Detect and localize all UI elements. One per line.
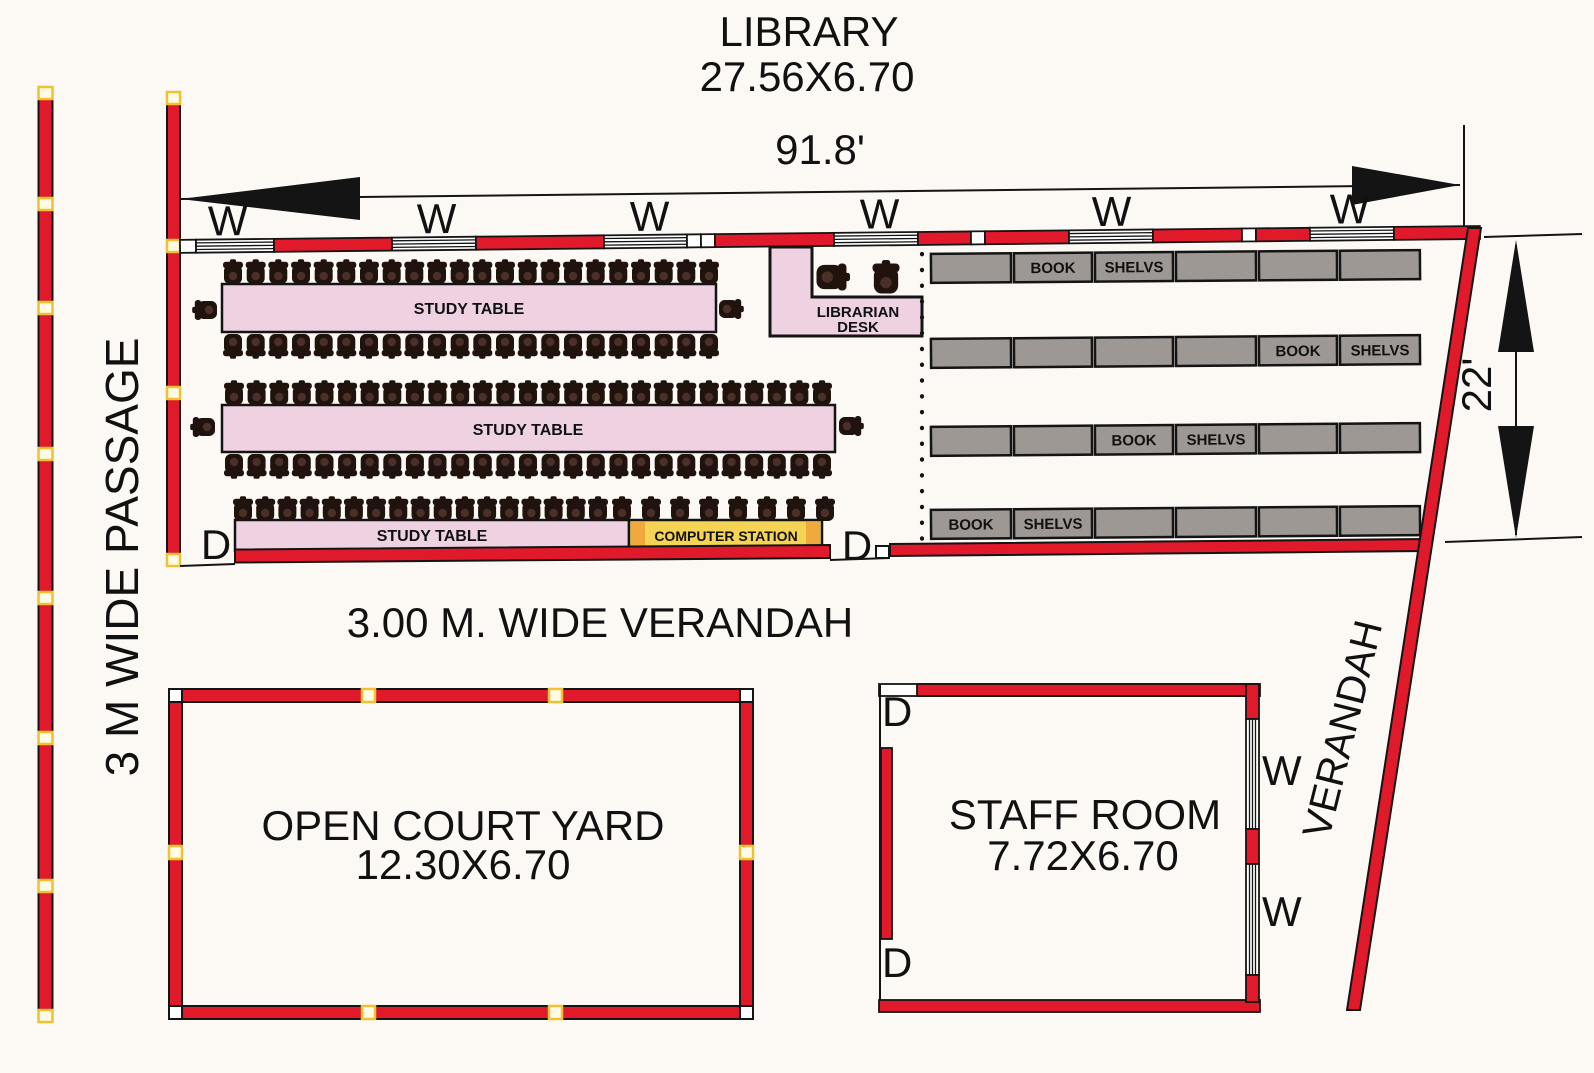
svg-text:SHELVS: SHELVS [1023,516,1082,533]
svg-text:W: W [417,195,457,242]
svg-text:W: W [1262,747,1302,794]
svg-text:COMPUTER STATION: COMPUTER STATION [654,528,797,544]
svg-text:D: D [842,522,872,569]
svg-text:BOOK: BOOK [1111,432,1156,449]
svg-text:3.00 M. WIDE VERANDAH: 3.00 M. WIDE VERANDAH [347,599,853,646]
svg-text:7.72X6.70: 7.72X6.70 [987,832,1179,879]
svg-text:W: W [860,190,900,237]
svg-text:SHELVS: SHELVS [1104,259,1163,276]
svg-text:BOOK: BOOK [948,516,993,533]
svg-text:STUDY TABLE: STUDY TABLE [473,422,584,439]
svg-text:SHELVS: SHELVS [1186,431,1245,448]
svg-text:BOOK: BOOK [1275,343,1320,360]
svg-text:W: W [630,193,670,240]
svg-text:STAFF ROOM: STAFF ROOM [949,791,1221,838]
svg-text:STUDY TABLE: STUDY TABLE [414,301,525,318]
svg-text:27.56X6.70: 27.56X6.70 [700,53,915,100]
svg-text:W: W [1330,185,1370,232]
svg-text:LIBRARY: LIBRARY [720,8,899,55]
svg-text:W: W [1262,888,1302,935]
svg-text:12.30X6.70: 12.30X6.70 [356,841,571,888]
svg-text:STUDY TABLE: STUDY TABLE [377,528,488,545]
svg-text:SHELVS: SHELVS [1350,342,1409,359]
svg-text:D: D [201,521,231,568]
svg-text:DESK: DESK [837,319,879,336]
svg-text:3 M WIDE PASSAGE: 3 M WIDE PASSAGE [96,338,148,777]
svg-text:W: W [208,197,248,244]
svg-text:W: W [1092,188,1132,235]
svg-text:D: D [882,939,912,986]
svg-text:D: D [882,688,912,735]
svg-text:22': 22' [1453,358,1500,413]
svg-text:91.8': 91.8' [775,126,865,173]
svg-text:BOOK: BOOK [1030,260,1075,277]
